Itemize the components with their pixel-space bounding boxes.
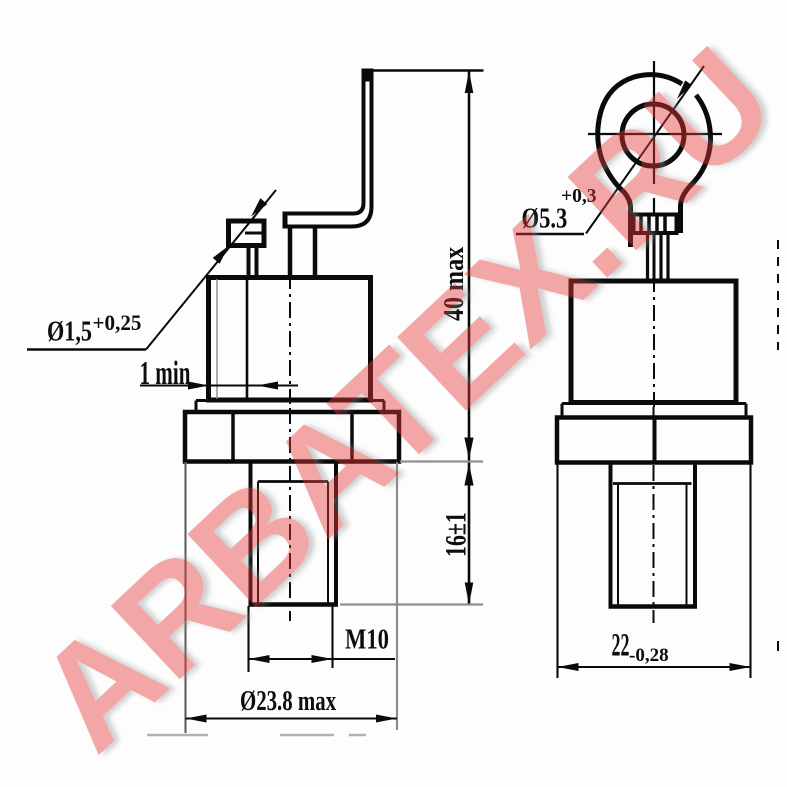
svg-text:M10: M10	[345, 623, 389, 655]
svg-text:22: 22	[612, 626, 630, 663]
svg-text:Ø1,5: Ø1,5	[47, 315, 92, 348]
svg-text:+0,25: +0,25	[93, 311, 142, 335]
svg-text:-0,28: -0,28	[629, 645, 669, 666]
svg-text:Ø23.8 max: Ø23.8 max	[240, 686, 337, 717]
svg-text:1 min: 1 min	[140, 355, 191, 392]
svg-text:16±1: 16±1	[439, 512, 472, 557]
